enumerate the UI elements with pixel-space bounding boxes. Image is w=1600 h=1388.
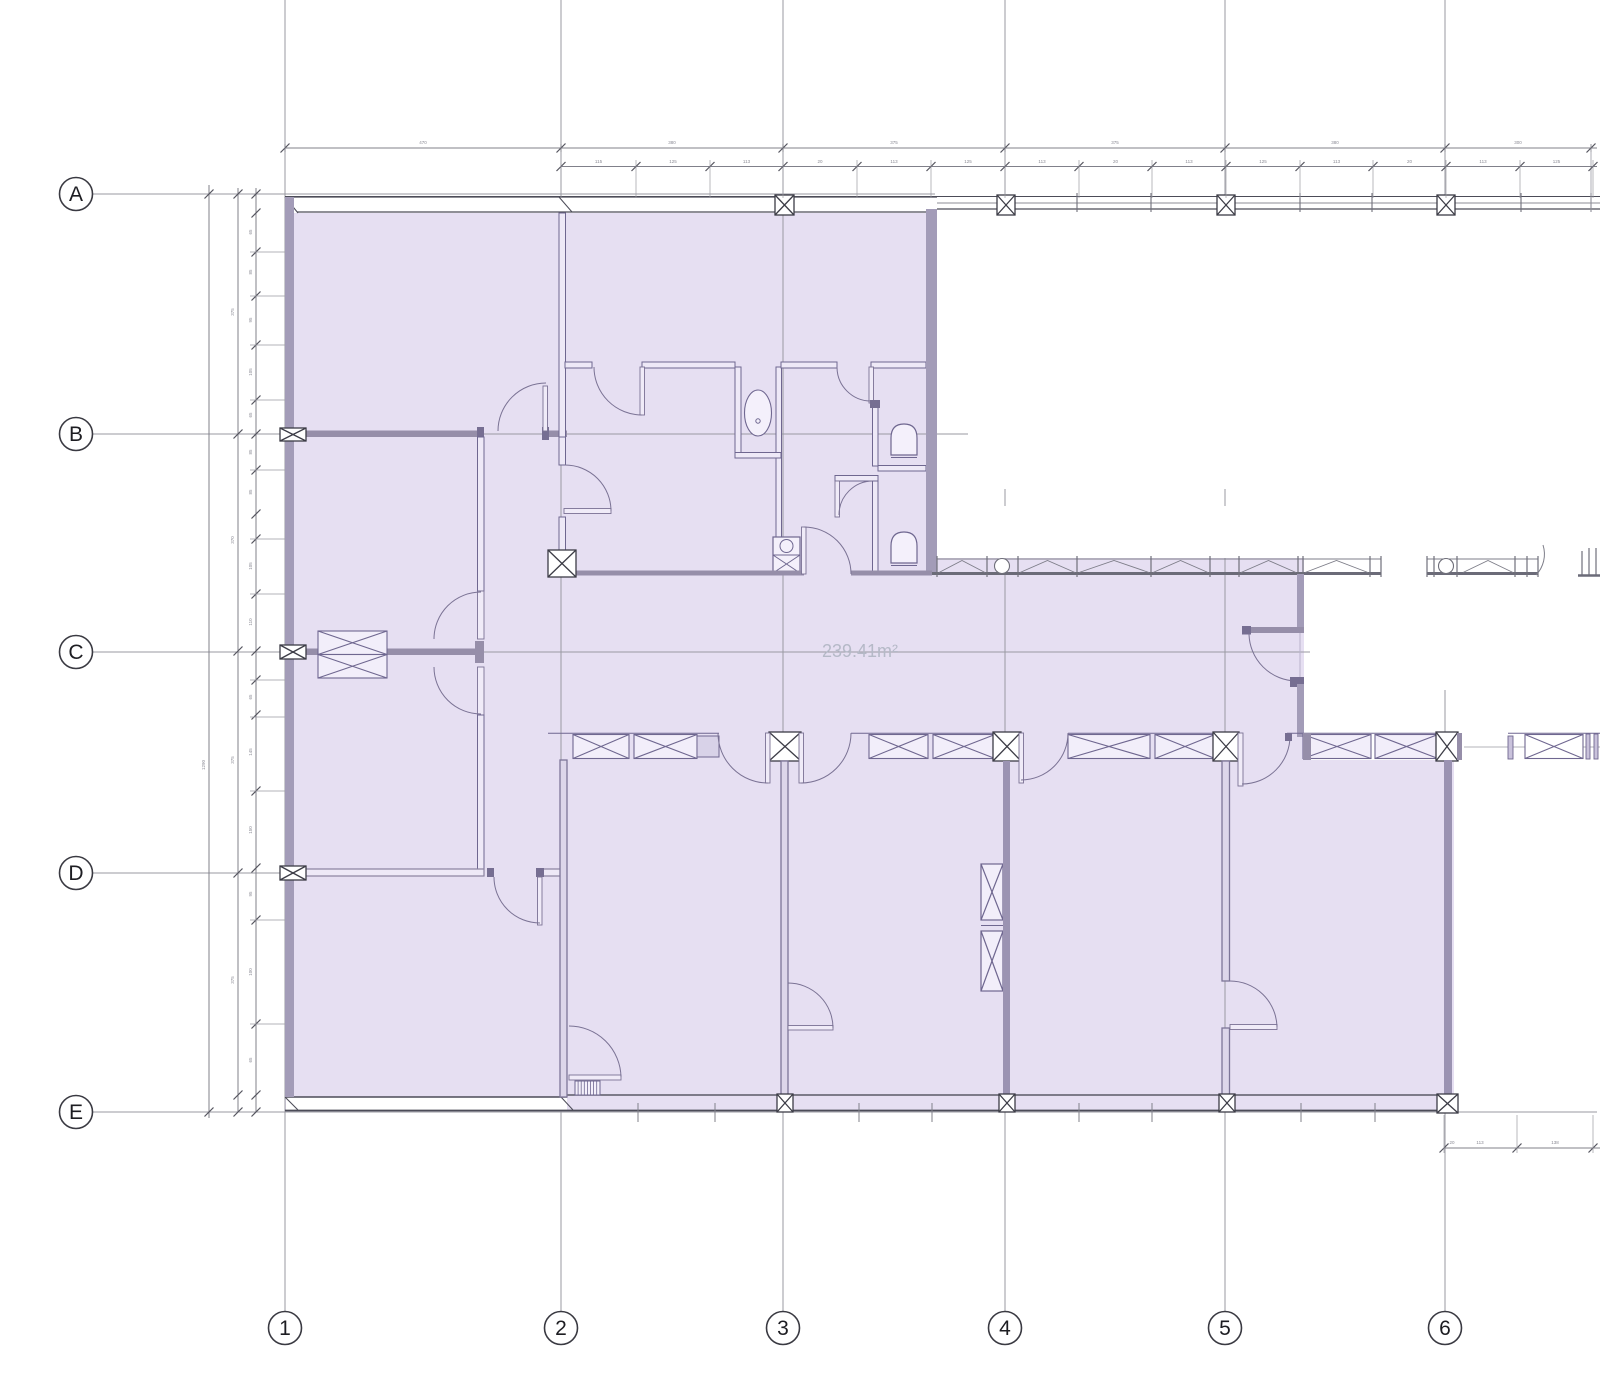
svg-text:B: B — [69, 423, 83, 446]
svg-text:85: 85 — [248, 269, 253, 275]
svg-text:20: 20 — [1113, 159, 1119, 164]
svg-text:113: 113 — [1038, 159, 1046, 164]
svg-text:6: 6 — [1439, 1317, 1451, 1340]
svg-text:65: 65 — [248, 229, 253, 235]
svg-text:20: 20 — [1407, 159, 1413, 164]
svg-text:115: 115 — [595, 159, 603, 164]
svg-text:125: 125 — [669, 159, 677, 164]
svg-text:138: 138 — [1551, 1140, 1559, 1145]
svg-text:380: 380 — [1331, 140, 1339, 145]
svg-text:85: 85 — [248, 489, 253, 495]
svg-text:65: 65 — [248, 694, 253, 700]
svg-text:1290: 1290 — [201, 759, 206, 770]
svg-text:85: 85 — [248, 449, 253, 455]
svg-text:239.41m²: 239.41m² — [822, 641, 898, 661]
svg-text:375: 375 — [890, 140, 898, 145]
svg-text:113: 113 — [743, 159, 751, 164]
svg-text:C: C — [68, 641, 83, 664]
svg-text:113: 113 — [890, 159, 898, 164]
svg-text:5: 5 — [1219, 1317, 1231, 1340]
svg-text:113: 113 — [1479, 159, 1487, 164]
svg-text:E: E — [69, 1101, 83, 1124]
svg-text:A: A — [69, 183, 83, 206]
svg-text:20: 20 — [1449, 1140, 1455, 1145]
svg-text:375: 375 — [230, 976, 235, 984]
svg-text:375: 375 — [230, 308, 235, 316]
svg-text:370: 370 — [230, 536, 235, 544]
svg-text:3: 3 — [777, 1317, 789, 1340]
svg-text:125: 125 — [964, 159, 972, 164]
svg-text:65: 65 — [248, 412, 253, 418]
svg-text:105: 105 — [248, 562, 253, 570]
svg-text:380: 380 — [668, 140, 676, 145]
svg-text:100: 100 — [248, 968, 253, 976]
svg-text:113: 113 — [1185, 159, 1193, 164]
svg-text:150: 150 — [248, 826, 253, 834]
svg-text:20: 20 — [817, 159, 823, 164]
svg-text:470: 470 — [419, 140, 427, 145]
svg-text:2: 2 — [555, 1317, 567, 1340]
svg-text:4: 4 — [999, 1317, 1011, 1340]
svg-text:375: 375 — [230, 756, 235, 764]
svg-text:65: 65 — [248, 1057, 253, 1063]
svg-text:113: 113 — [1476, 1140, 1484, 1145]
svg-text:95: 95 — [248, 317, 253, 323]
svg-text:95: 95 — [248, 891, 253, 897]
svg-text:105: 105 — [248, 368, 253, 376]
svg-text:D: D — [68, 862, 83, 885]
svg-text:300: 300 — [1514, 140, 1522, 145]
svg-text:125: 125 — [1259, 159, 1267, 164]
svg-text:110: 110 — [248, 618, 253, 626]
svg-text:113: 113 — [1333, 159, 1341, 164]
svg-text:375: 375 — [1111, 140, 1119, 145]
svg-text:125: 125 — [1553, 159, 1561, 164]
svg-text:1: 1 — [279, 1317, 291, 1340]
svg-text:145: 145 — [248, 748, 253, 756]
